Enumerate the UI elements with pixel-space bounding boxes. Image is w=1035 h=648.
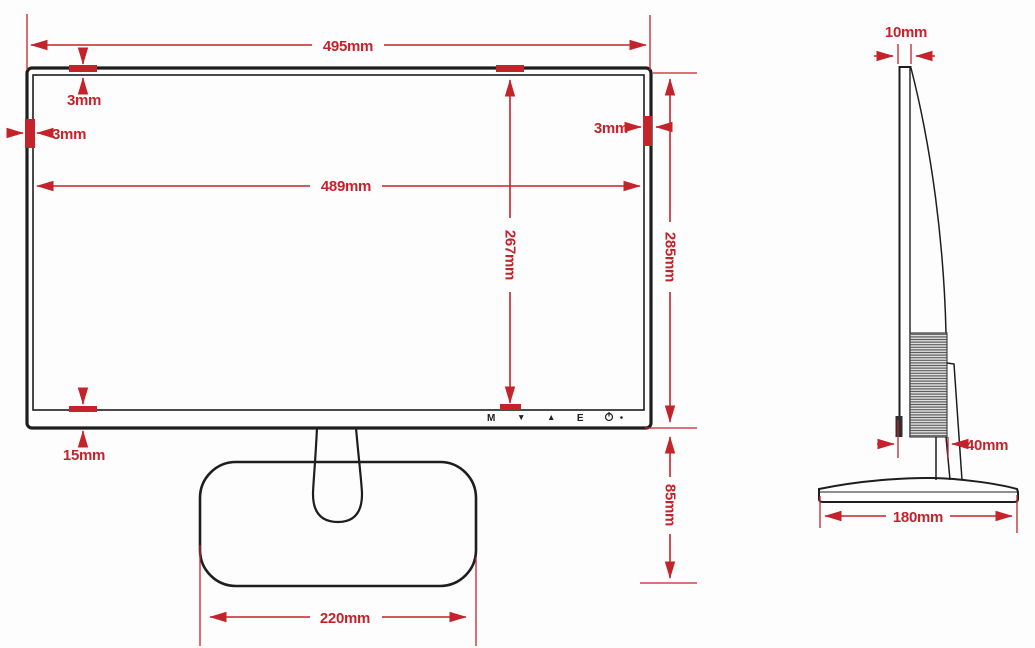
dim-total-height: 285mm	[645, 73, 697, 428]
stand-neck-side	[947, 363, 962, 480]
dim-bezel-bottom-label: 15mm	[63, 447, 105, 464]
power-icon	[606, 412, 613, 421]
bezel-tick	[496, 65, 524, 72]
exit-button-label: E	[577, 413, 584, 424]
dim-bezel-top-label: 3mm	[67, 92, 101, 109]
dim-body-depth-label: 40mm	[966, 437, 1008, 454]
dim-stand-height: 85mm	[640, 437, 697, 583]
dim-base-width: 220mm	[200, 545, 476, 646]
dim-active-height-label: 267mm	[502, 230, 519, 280]
dim-base-width-label: 220mm	[320, 610, 370, 627]
dim-bezel-left-label: 3mm	[52, 126, 86, 143]
bezel-tick	[69, 65, 97, 72]
control-buttons: M ▼ ▲ E	[487, 412, 623, 424]
monitor-screen	[33, 75, 644, 410]
side-view: 10mm 40mm 180mm	[819, 24, 1018, 533]
dim-base-depth-label: 180mm	[893, 509, 943, 526]
bezel-tick	[69, 406, 97, 412]
menu-button-label: M	[487, 413, 495, 424]
dim-stand-height-label: 85mm	[662, 484, 679, 526]
dim-total-width: 495mm	[27, 14, 650, 70]
stand-neck-front	[313, 428, 362, 522]
bezel-tick	[500, 404, 521, 410]
up-button-icon: ▲	[547, 412, 555, 422]
stand-base-side	[819, 478, 1018, 502]
power-led-dot	[620, 416, 623, 419]
bezel-tick	[643, 116, 652, 146]
dim-bezel-top: 3mm	[67, 54, 101, 109]
dim-bezel-right-label: 3mm	[594, 120, 628, 137]
dim-total-width-label: 495mm	[323, 38, 373, 55]
dim-active-height: 267mm	[496, 65, 524, 410]
stand-base-front	[200, 462, 476, 586]
dim-active-width: 489mm	[37, 178, 640, 195]
monitor-outer-frame	[27, 68, 651, 428]
dim-bezel-left: 3mm	[12, 119, 86, 148]
monitor-dimension-diagram: M ▼ ▲ E 495mm 489mm	[0, 0, 1035, 648]
dim-panel-thickness-label: 10mm	[885, 24, 927, 41]
down-button-icon: ▼	[517, 412, 525, 422]
vent-grille	[910, 333, 947, 437]
dim-base-depth: 180mm	[820, 495, 1017, 533]
dim-total-height-label: 285mm	[662, 232, 679, 282]
bezel-tick	[25, 119, 35, 148]
diagram-svg: M ▼ ▲ E 495mm 489mm	[0, 0, 1035, 648]
front-view: M ▼ ▲ E 495mm 489mm	[12, 14, 697, 646]
bottom-bezel-side	[896, 416, 903, 437]
dim-active-width-label: 489mm	[321, 178, 371, 195]
back-cover-curve	[911, 68, 946, 333]
dim-bezel-right: 3mm	[594, 116, 669, 146]
dim-panel-thickness: 10mm	[874, 24, 935, 64]
